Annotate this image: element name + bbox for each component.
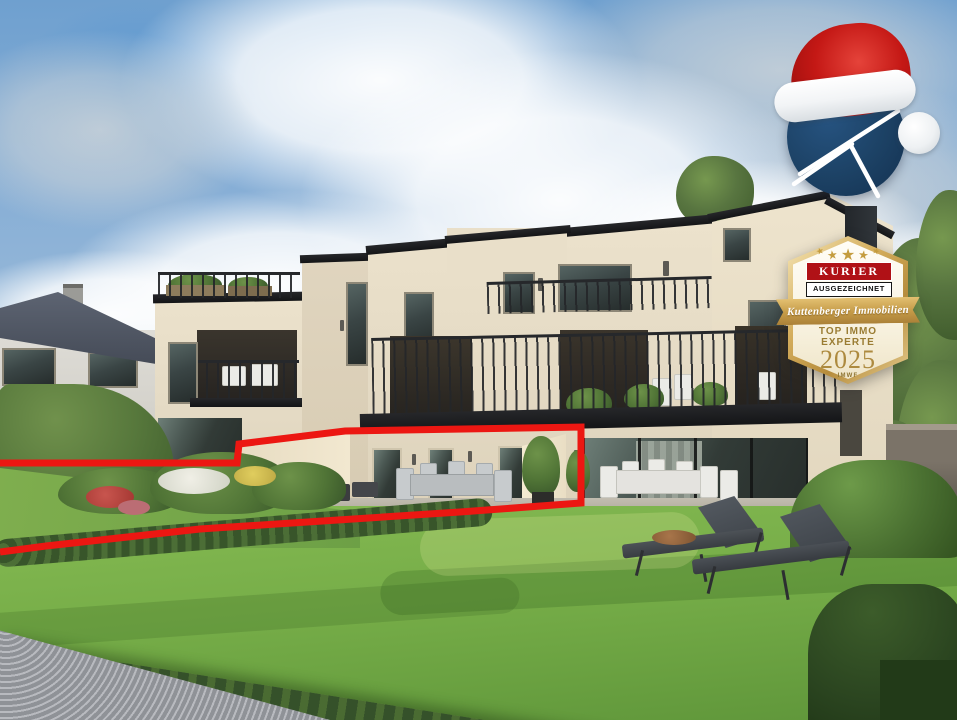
facade-recess bbox=[840, 390, 862, 456]
badge-institute: IMWF bbox=[798, 373, 898, 379]
sun-lounger bbox=[688, 502, 888, 614]
badge-ribbon: Kuttenberger Immobilien bbox=[776, 297, 920, 326]
badge-award: AUSGEZEICHNET bbox=[806, 282, 892, 297]
hedge-dark-corner bbox=[880, 660, 957, 720]
neighbor-window bbox=[2, 348, 56, 386]
listing-photo: ★ ★ ★ ★ ★ KURIER AUSGEZEICHNET Kuttenber… bbox=[0, 0, 957, 720]
wall-lamp bbox=[468, 451, 472, 462]
lounger-leg bbox=[781, 570, 789, 600]
wall-lamp bbox=[412, 454, 416, 465]
badge-brand: KURIER bbox=[806, 262, 892, 281]
attic-window bbox=[723, 228, 751, 262]
wall-lamp bbox=[663, 261, 669, 276]
dining-chair bbox=[494, 470, 512, 502]
flowers-yellow bbox=[234, 466, 276, 486]
potted-tree bbox=[522, 436, 560, 496]
garden-bench bbox=[352, 482, 378, 497]
dining-table bbox=[410, 474, 494, 496]
planter-pot bbox=[532, 492, 554, 507]
badge-year: 2025 bbox=[798, 346, 898, 374]
star-icon: ★ bbox=[857, 247, 870, 262]
company-logo bbox=[760, 10, 950, 210]
attic-terrace-railing bbox=[487, 276, 713, 314]
badge-category-1: TOP IMMO bbox=[798, 326, 898, 337]
potted-plant bbox=[566, 450, 590, 492]
window bbox=[168, 342, 198, 404]
star-icon: ★ bbox=[814, 245, 825, 258]
window-tall bbox=[346, 282, 368, 366]
star-icon: ★ bbox=[826, 247, 839, 262]
santa-hat-pompom bbox=[898, 112, 940, 154]
flowers-pink bbox=[118, 500, 150, 515]
star-icon: ★ bbox=[870, 245, 881, 258]
wall-lamp bbox=[340, 320, 344, 331]
award-badge: ★ ★ ★ ★ ★ KURIER AUSGEZEICHNET Kuttenber… bbox=[770, 230, 950, 395]
flowers-white bbox=[158, 468, 230, 494]
roof-terrace-railing bbox=[158, 272, 300, 298]
balcony-slab bbox=[190, 398, 302, 407]
dining-table-white bbox=[616, 470, 702, 494]
